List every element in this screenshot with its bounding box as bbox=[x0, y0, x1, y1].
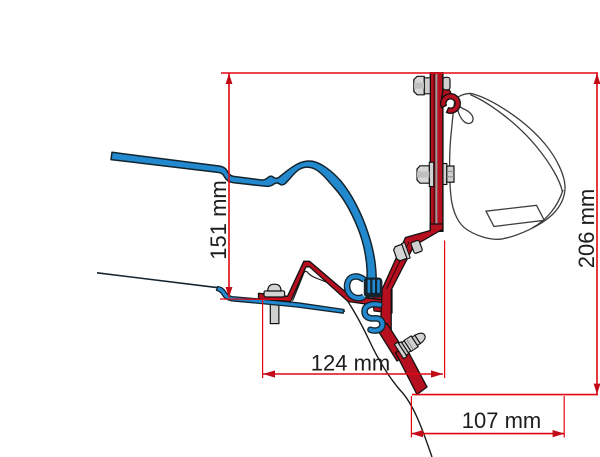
svg-text:107 mm: 107 mm bbox=[462, 408, 541, 433]
svg-text:151 mm: 151 mm bbox=[206, 180, 231, 259]
svg-text:124 mm: 124 mm bbox=[311, 351, 390, 376]
svg-text:206 mm: 206 mm bbox=[574, 189, 599, 268]
